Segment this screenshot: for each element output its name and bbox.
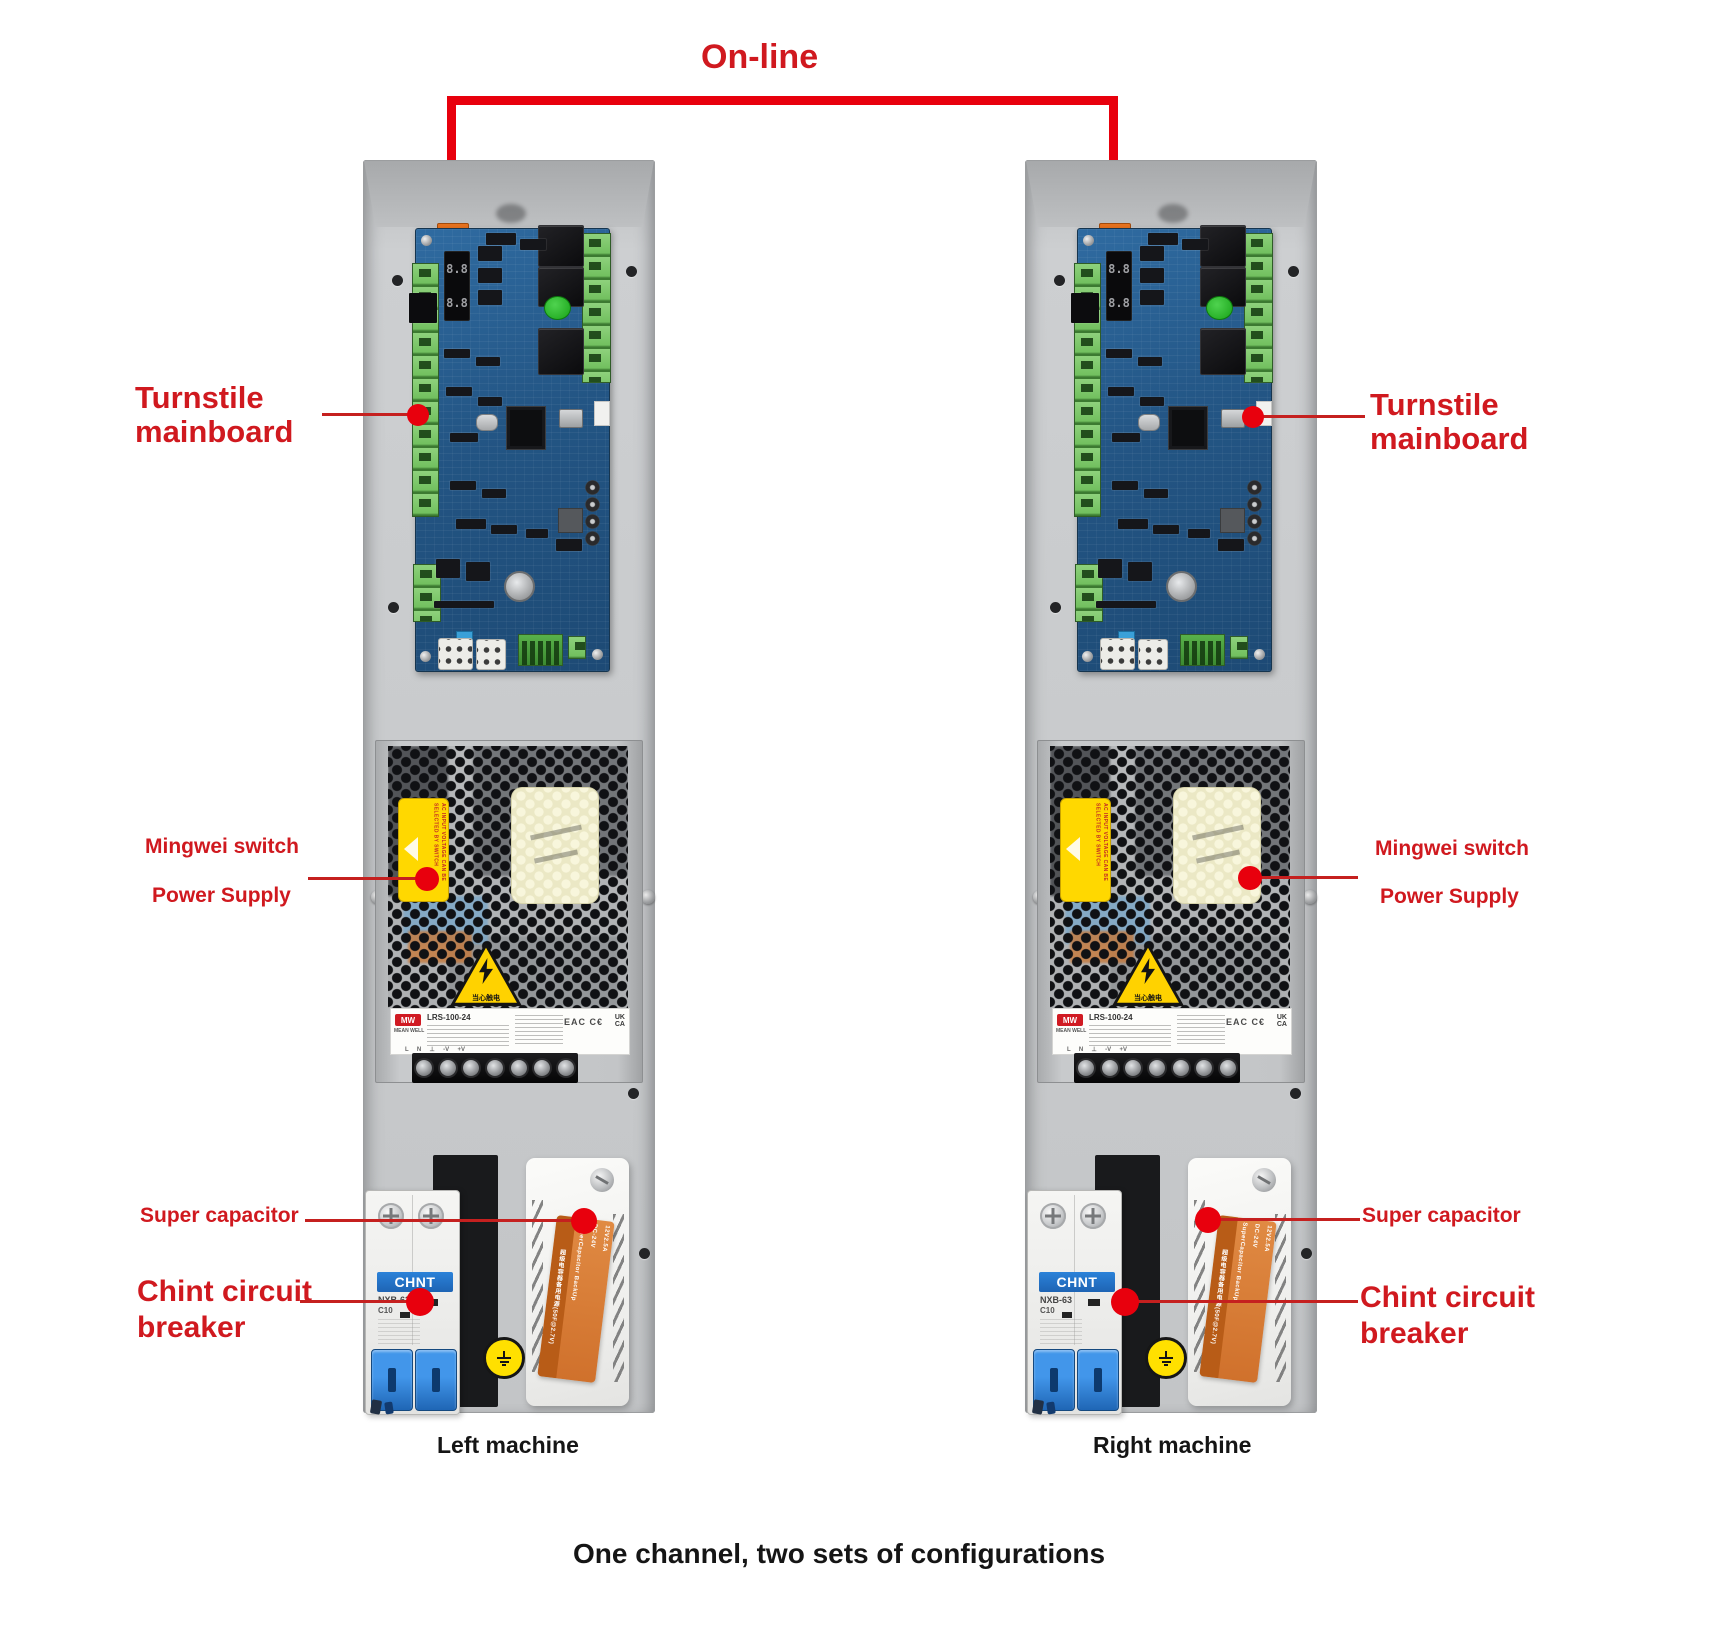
chint-logo-band: CHNT bbox=[1039, 1272, 1115, 1292]
pointer-dot-turnstile-left bbox=[407, 404, 429, 426]
relay bbox=[1200, 328, 1246, 375]
board-screw bbox=[1083, 235, 1094, 246]
capacitor-column bbox=[584, 479, 601, 546]
vent-slots bbox=[1275, 1214, 1286, 1382]
label-turnstile-mainboard-right: Turnstile mainboard bbox=[1370, 388, 1528, 456]
transistor-group bbox=[478, 268, 502, 283]
cabinet-smudge bbox=[1158, 204, 1188, 223]
green-terminal-column bbox=[1244, 233, 1273, 383]
online-bracket-horizontal bbox=[447, 96, 1118, 105]
breaker-model: NXB-63 bbox=[1040, 1295, 1072, 1305]
seven-segment-display: 8.8 8.8 bbox=[1106, 251, 1132, 321]
ic-chip bbox=[491, 525, 517, 534]
panel-hole bbox=[1288, 266, 1299, 277]
green-terminal-bottom bbox=[518, 634, 563, 666]
heatsink bbox=[558, 508, 583, 533]
panel-hole bbox=[1290, 1088, 1301, 1099]
pointer-dot-chint-right bbox=[1111, 1288, 1139, 1316]
seven-segment-digits: 8.8 bbox=[446, 296, 468, 310]
leader-turnstile-right bbox=[1253, 415, 1365, 418]
psu-brand: MEAN WELL bbox=[394, 1028, 424, 1034]
warning-text-cn: 当心触电 bbox=[1112, 993, 1184, 1003]
leader-supercap-right bbox=[1206, 1218, 1360, 1221]
ic-chip bbox=[482, 489, 506, 498]
psu-cert-marks: EAC C€ bbox=[1226, 1017, 1265, 1027]
psu-model: LRS-100-24 bbox=[1089, 1013, 1133, 1022]
seven-segment-digits: 8.8 bbox=[1108, 262, 1130, 276]
label-turnstile-mainboard-left: Turnstile mainboard bbox=[135, 381, 293, 449]
terminal-screw bbox=[558, 1060, 574, 1076]
psu-ukca-mark: UKCA bbox=[1277, 1014, 1287, 1028]
board-screw bbox=[1254, 649, 1265, 660]
relay bbox=[538, 328, 584, 375]
ic-chip bbox=[520, 239, 546, 250]
board-screw bbox=[1082, 651, 1093, 662]
label-chint-left: Chint circuit breaker bbox=[137, 1274, 312, 1346]
meanwell-logo: MW bbox=[395, 1014, 421, 1026]
transistor-group bbox=[1098, 559, 1122, 578]
ic-chip bbox=[1106, 349, 1132, 358]
super-capacitor-module: 超级电容器备用电源(50F@2.7V) SuperCapacitor BackU… bbox=[1188, 1158, 1291, 1406]
black-connector bbox=[1071, 293, 1099, 323]
terminal-screw bbox=[440, 1060, 456, 1076]
heatsink bbox=[1220, 508, 1245, 533]
ic-chip bbox=[1108, 387, 1134, 396]
ic-chip bbox=[1148, 233, 1178, 245]
board-screw bbox=[592, 649, 603, 660]
electric-shock-warning-triangle: 当心触电 bbox=[450, 942, 522, 1006]
electric-shock-warning-triangle: 当心触电 bbox=[1112, 942, 1184, 1006]
psu-yellow-label-text: AC INPUT VOLTAGE CAN BE SELECTED BY SWIT… bbox=[1093, 803, 1108, 897]
switching-power-supply: AC INPUT VOLTAGE CAN BE SELECTED BY SWIT… bbox=[375, 740, 643, 1083]
leader-turnstile-left bbox=[322, 413, 418, 416]
psu-spec-lines bbox=[515, 1015, 563, 1047]
electrolytic-capacitor bbox=[504, 571, 535, 602]
qc-sticker bbox=[1206, 296, 1233, 320]
leader-psu-left bbox=[308, 877, 427, 880]
main-processor-chip bbox=[506, 406, 546, 450]
earth-ground-icon bbox=[496, 1351, 512, 1366]
toggle-slot bbox=[388, 1368, 396, 1392]
crystal-oscillator bbox=[1138, 414, 1160, 431]
earth-ground-icon bbox=[1158, 1351, 1174, 1366]
caption-left-machine: Left machine bbox=[437, 1432, 578, 1459]
breaker-screw bbox=[418, 1203, 444, 1229]
turnstile-mainboard: 8.8 8.8 bbox=[415, 228, 610, 672]
label-line: breaker bbox=[137, 1310, 312, 1346]
label-chint-right: Chint circuit breaker bbox=[1360, 1280, 1535, 1352]
breaker-screw bbox=[1040, 1203, 1066, 1229]
component-row bbox=[434, 601, 494, 608]
seven-segment-display: 8.8 8.8 bbox=[444, 251, 470, 321]
ic-chip bbox=[1118, 519, 1148, 529]
breaker-screw bbox=[378, 1203, 404, 1229]
breaker-indicator bbox=[400, 1312, 410, 1318]
seven-segment-digits: 8.8 bbox=[1108, 296, 1130, 310]
breaker-fine-print bbox=[378, 1319, 420, 1345]
electrolytic-capacitor bbox=[1166, 571, 1197, 602]
psu-terminal-strip bbox=[412, 1053, 578, 1083]
panel-hole bbox=[639, 1248, 650, 1259]
green-terminal-column bbox=[582, 233, 611, 383]
breaker-rating: C10 bbox=[378, 1306, 393, 1315]
terminal-screw bbox=[416, 1060, 432, 1076]
ic-chip bbox=[1112, 481, 1138, 490]
turnstile-mainboard: 8.8 8.8 bbox=[1077, 228, 1272, 672]
panel-hole bbox=[392, 275, 403, 286]
terminal-screw bbox=[1173, 1060, 1189, 1076]
ic-chip bbox=[1188, 529, 1210, 538]
transistor-group bbox=[1140, 268, 1164, 283]
cabinet-smudge bbox=[496, 204, 526, 223]
board-screw bbox=[420, 651, 431, 662]
transistor-group bbox=[436, 559, 460, 578]
molex-connector bbox=[1138, 639, 1168, 670]
psu-yellow-warning-label: AC INPUT VOLTAGE CAN BE SELECTED BY SWIT… bbox=[1060, 798, 1111, 902]
wire bbox=[384, 1402, 394, 1415]
molex-connector bbox=[476, 639, 506, 670]
terminal-screw bbox=[511, 1060, 527, 1076]
crystal-oscillator bbox=[476, 414, 498, 431]
psu-model: LRS-100-24 bbox=[427, 1013, 471, 1022]
ukca-line: UK bbox=[1277, 1014, 1287, 1021]
ic-chip bbox=[1138, 357, 1162, 366]
ukca-line: UK bbox=[615, 1014, 625, 1021]
leader-psu-right bbox=[1248, 876, 1358, 879]
footer-text: One channel, two sets of configurations bbox=[573, 1538, 1105, 1570]
label-line: Turnstile bbox=[135, 381, 293, 415]
terminal-screw bbox=[1220, 1060, 1236, 1076]
terminal-screw bbox=[534, 1060, 550, 1076]
psu-terminal-strip bbox=[1074, 1053, 1240, 1083]
psu-spec-label: MW MEAN WELL LRS-100-24 EAC C€ UKCA L N … bbox=[390, 1008, 630, 1055]
white-connector bbox=[594, 401, 610, 426]
capacitor-column bbox=[1246, 479, 1263, 546]
toggle-slot bbox=[1050, 1368, 1058, 1392]
left-arrow-icon bbox=[404, 837, 418, 861]
label-line: mainboard bbox=[1370, 422, 1528, 456]
terminal-screw bbox=[1149, 1060, 1165, 1076]
leader-chint-right bbox=[1124, 1300, 1358, 1303]
ic-chip bbox=[526, 529, 548, 538]
panel-hole bbox=[626, 266, 637, 277]
ic-chip bbox=[444, 349, 470, 358]
board-screw bbox=[421, 235, 432, 246]
fan-text-line bbox=[1196, 849, 1240, 863]
ic-chip bbox=[1112, 433, 1140, 442]
fan-text-line bbox=[530, 825, 582, 841]
toggle-slot bbox=[432, 1368, 440, 1392]
ground-symbol-sticker bbox=[483, 1337, 525, 1379]
psu-spec-lines bbox=[1089, 1025, 1171, 1047]
panel-hole bbox=[1054, 275, 1065, 286]
chint-circuit-breaker: CHNT NXB-63 C10 bbox=[1027, 1190, 1122, 1415]
diagram-canvas: On-line 8.8 8.8 bbox=[0, 0, 1729, 1636]
ic-chip bbox=[1153, 525, 1179, 534]
breaker-indicator bbox=[1088, 1299, 1100, 1306]
terminal-screw bbox=[1125, 1060, 1141, 1076]
terminal-screw bbox=[1196, 1060, 1212, 1076]
psu-spec-lines bbox=[1177, 1015, 1225, 1047]
ic-chip bbox=[1144, 489, 1168, 498]
green-terminal-bottom bbox=[568, 636, 586, 659]
green-terminal-bottom bbox=[1230, 636, 1248, 659]
label-power-supply-left: Power Supply bbox=[152, 884, 291, 908]
terminal-screw bbox=[487, 1060, 503, 1076]
label-power-supply-right: Power Supply bbox=[1380, 885, 1519, 909]
transistor-group bbox=[466, 562, 490, 581]
pointer-dot-turnstile-right bbox=[1242, 406, 1264, 428]
mini-usb-connector bbox=[559, 409, 583, 428]
black-connector bbox=[409, 293, 437, 323]
psu-spec-lines bbox=[427, 1025, 509, 1047]
psu-spec-label: MW MEAN WELL LRS-100-24 EAC C€ UKCA L N … bbox=[1052, 1008, 1292, 1055]
transistor-group bbox=[1128, 562, 1152, 581]
psu-fan-area bbox=[512, 788, 598, 903]
ic-chip bbox=[556, 539, 582, 551]
qc-sticker bbox=[544, 296, 571, 320]
transistor-group bbox=[478, 246, 502, 261]
terminal-screw bbox=[1102, 1060, 1118, 1076]
ic-chip bbox=[446, 387, 472, 396]
panel-hole bbox=[388, 602, 399, 613]
left-machine-cabinet: 8.8 8.8 bbox=[363, 160, 655, 1413]
ground-symbol-sticker bbox=[1145, 1337, 1187, 1379]
panel-hole bbox=[1301, 1248, 1312, 1259]
panel-screw bbox=[641, 890, 655, 904]
right-machine-cabinet: 8.8 8.8 bbox=[1025, 160, 1317, 1413]
breaker-screw bbox=[1080, 1203, 1106, 1229]
psu-terminal-labels: L N ⊥ -V +V bbox=[405, 1046, 615, 1053]
terminal-screw bbox=[463, 1060, 479, 1076]
ic-chip bbox=[1182, 239, 1208, 250]
green-terminal-bottom bbox=[1180, 634, 1225, 666]
transistor-group bbox=[1140, 290, 1164, 305]
ic-chip bbox=[1140, 397, 1164, 406]
supercap-orange-label: 超级电容器备用电源(50F@2.7V) SuperCapacitor BackU… bbox=[537, 1215, 614, 1383]
ic-chip bbox=[478, 397, 502, 406]
pointer-dot-psu-left bbox=[415, 867, 439, 891]
leader-supercap-left bbox=[305, 1219, 584, 1222]
label-line: Turnstile bbox=[1370, 388, 1528, 422]
supercap-screw bbox=[1252, 1168, 1276, 1192]
seven-segment-digits: 8.8 bbox=[446, 262, 468, 276]
ukca-line: CA bbox=[615, 1021, 625, 1028]
psu-brand: MEAN WELL bbox=[1056, 1028, 1086, 1034]
ic-chip bbox=[476, 357, 500, 366]
breaker-toggle bbox=[1077, 1349, 1119, 1411]
left-arrow-icon bbox=[1066, 837, 1080, 861]
caption-right-machine: Right machine bbox=[1093, 1432, 1249, 1459]
supercap-screw bbox=[590, 1168, 614, 1192]
breaker-indicator bbox=[1062, 1312, 1072, 1318]
warning-text-cn: 当心触电 bbox=[450, 993, 522, 1003]
vent-slots bbox=[613, 1214, 624, 1382]
label-line: Chint circuit bbox=[1360, 1280, 1535, 1316]
pointer-dot-supercap-right bbox=[1195, 1207, 1221, 1233]
molex-connector bbox=[438, 638, 473, 670]
component-row bbox=[1096, 601, 1156, 608]
fan-text-line bbox=[534, 849, 578, 863]
breaker-fine-print bbox=[1040, 1319, 1082, 1345]
switching-power-supply: AC INPUT VOLTAGE CAN BE SELECTED BY SWIT… bbox=[1037, 740, 1305, 1083]
ic-chip bbox=[1218, 539, 1244, 551]
label-line: breaker bbox=[1360, 1316, 1535, 1352]
wire bbox=[1046, 1402, 1056, 1415]
super-capacitor-module: 超级电容器备用电源(50F@2.7V) SuperCapacitor BackU… bbox=[526, 1158, 629, 1406]
psu-ukca-mark: UKCA bbox=[615, 1014, 625, 1028]
terminal-screw bbox=[1078, 1060, 1094, 1076]
panel-hole bbox=[1050, 602, 1061, 613]
pointer-dot-supercap-left bbox=[571, 1208, 597, 1234]
ic-chip bbox=[486, 233, 516, 245]
panel-hole bbox=[628, 1088, 639, 1099]
transistor-group bbox=[1140, 246, 1164, 261]
toggle-slot bbox=[1094, 1368, 1102, 1392]
transistor-group bbox=[478, 290, 502, 305]
label-supercap-left: Super capacitor bbox=[140, 1204, 299, 1228]
psu-terminal-labels: L N ⊥ -V +V bbox=[1067, 1046, 1277, 1053]
main-processor-chip bbox=[1168, 406, 1208, 450]
ukca-line: CA bbox=[1277, 1021, 1287, 1028]
ic-chip bbox=[450, 481, 476, 490]
label-supercap-right: Super capacitor bbox=[1362, 1204, 1521, 1228]
label-line: Chint circuit bbox=[137, 1274, 312, 1310]
molex-connector bbox=[1100, 638, 1135, 670]
panel-screw bbox=[1303, 890, 1317, 904]
psu-cert-marks: EAC C€ bbox=[564, 1017, 603, 1027]
meanwell-logo: MW bbox=[1057, 1014, 1083, 1026]
online-title: On-line bbox=[701, 38, 818, 77]
breaker-toggle bbox=[415, 1349, 457, 1411]
label-mingwei-left: Mingwei switch bbox=[145, 835, 299, 859]
leader-chint-left bbox=[300, 1300, 420, 1303]
ic-chip bbox=[456, 519, 486, 529]
supercap-orange-label: 超级电容器备用电源(50F@2.7V) SuperCapacitor BackU… bbox=[1199, 1215, 1276, 1383]
fan-text-line bbox=[1192, 825, 1244, 841]
pointer-dot-chint-left bbox=[406, 1288, 434, 1316]
breaker-rating: C10 bbox=[1040, 1306, 1055, 1315]
pointer-dot-psu-right bbox=[1238, 866, 1262, 890]
label-line: mainboard bbox=[135, 415, 293, 449]
ic-chip bbox=[450, 433, 478, 442]
label-mingwei-right: Mingwei switch bbox=[1375, 837, 1529, 861]
